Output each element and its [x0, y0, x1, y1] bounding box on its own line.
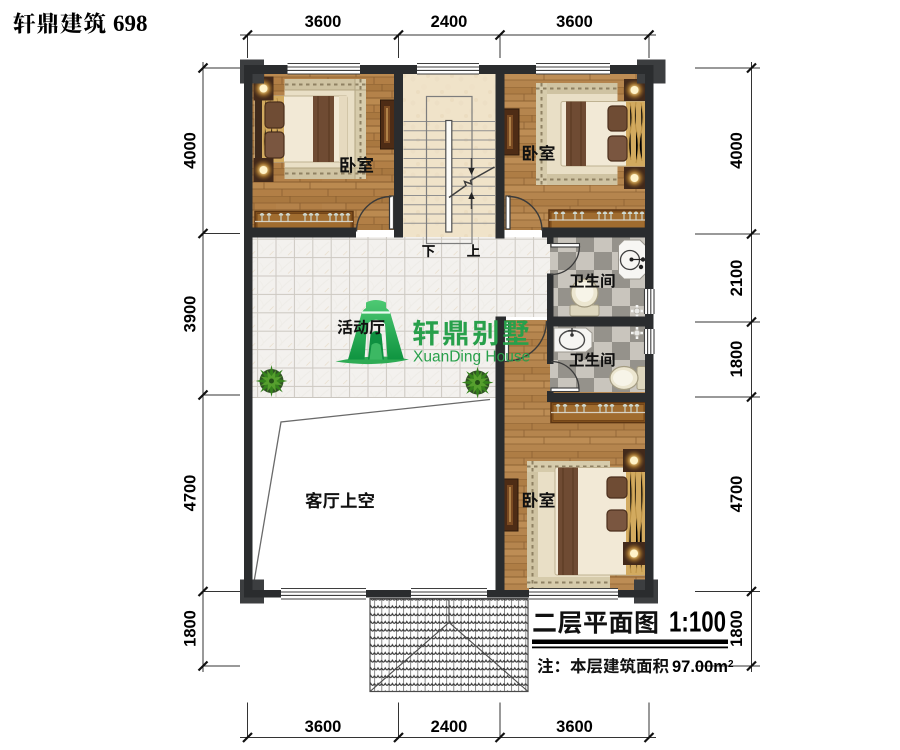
svg-text:XuanDing House: XuanDing House [413, 349, 530, 366]
svg-text:1800: 1800 [182, 610, 200, 647]
svg-text:4000: 4000 [728, 132, 746, 169]
svg-text:1:100: 1:100 [669, 607, 726, 639]
svg-text:2400: 2400 [431, 718, 468, 736]
svg-text:3600: 3600 [556, 718, 593, 736]
svg-text:97.00m2: 97.00m2 [672, 658, 734, 676]
svg-text:3600: 3600 [305, 718, 342, 736]
svg-text:3600: 3600 [556, 13, 593, 31]
svg-text:2400: 2400 [431, 13, 468, 31]
svg-text:4700: 4700 [182, 475, 200, 512]
svg-text:4000: 4000 [182, 132, 200, 169]
svg-text:3600: 3600 [305, 13, 342, 31]
svg-text:698: 698 [113, 11, 148, 36]
svg-text:4700: 4700 [728, 476, 746, 513]
svg-text:1800: 1800 [728, 341, 746, 378]
svg-text:2100: 2100 [728, 260, 746, 297]
svg-text:1800: 1800 [728, 610, 746, 647]
svg-text:3900: 3900 [182, 296, 200, 333]
